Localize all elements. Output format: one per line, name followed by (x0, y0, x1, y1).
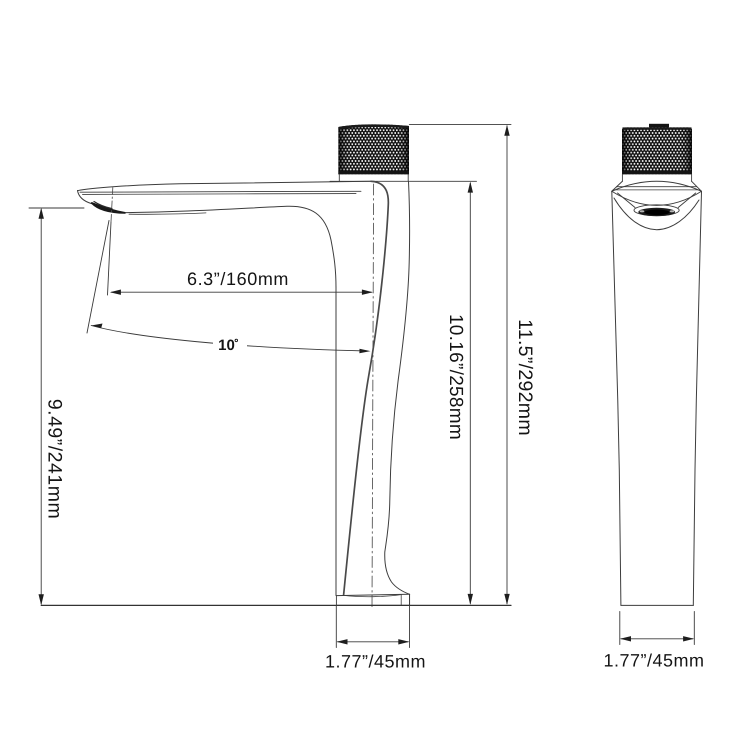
svg-text:9.49”/241mm: 9.49”/241mm (44, 399, 66, 519)
svg-text:1.77”/45mm: 1.77”/45mm (325, 652, 426, 672)
svg-text:10: 10 (218, 337, 235, 354)
svg-text:6.3”/160mm: 6.3”/160mm (187, 269, 289, 289)
svg-text:1.77”/45mm: 1.77”/45mm (603, 651, 704, 671)
svg-text:10.16”/258mm: 10.16”/258mm (445, 314, 466, 440)
svg-text:11.5”/292mm: 11.5”/292mm (514, 319, 536, 436)
